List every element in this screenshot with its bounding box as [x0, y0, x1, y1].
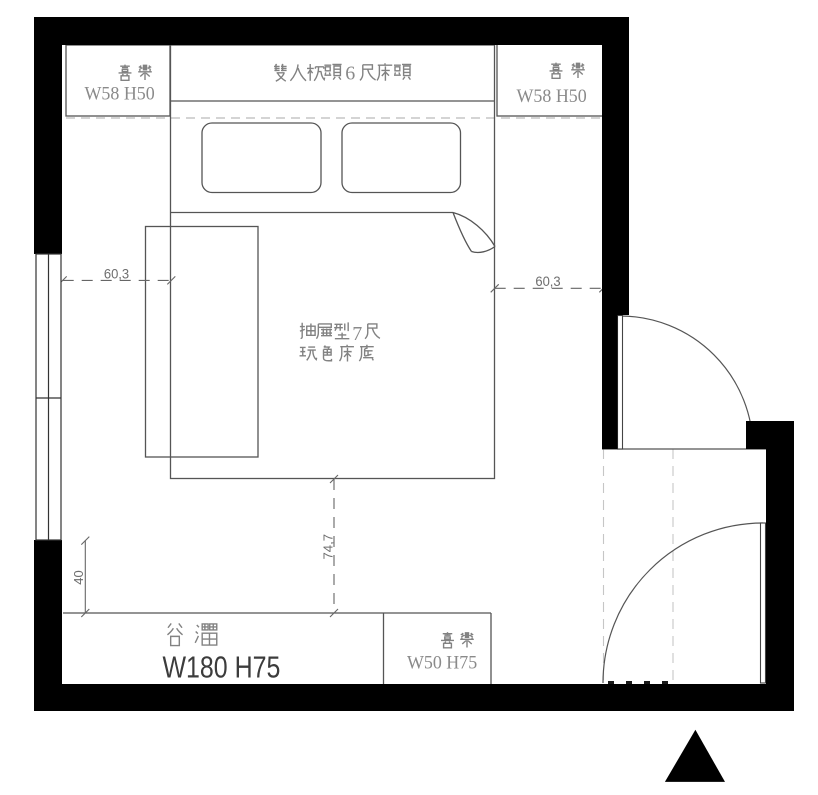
svg-text:60,3: 60,3: [104, 266, 129, 282]
svg-text:7: 7: [352, 323, 362, 345]
svg-text:60,3: 60,3: [535, 273, 560, 289]
svg-text:W50 H75: W50 H75: [407, 652, 477, 674]
svg-text:6: 6: [345, 63, 355, 85]
svg-text:W180 H75: W180 H75: [163, 650, 281, 684]
svg-text:W58 H50: W58 H50: [85, 83, 155, 105]
svg-text:W58 H50: W58 H50: [517, 85, 587, 107]
svg-text:74,7: 74,7: [320, 534, 335, 560]
svg-text:40: 40: [71, 570, 86, 584]
